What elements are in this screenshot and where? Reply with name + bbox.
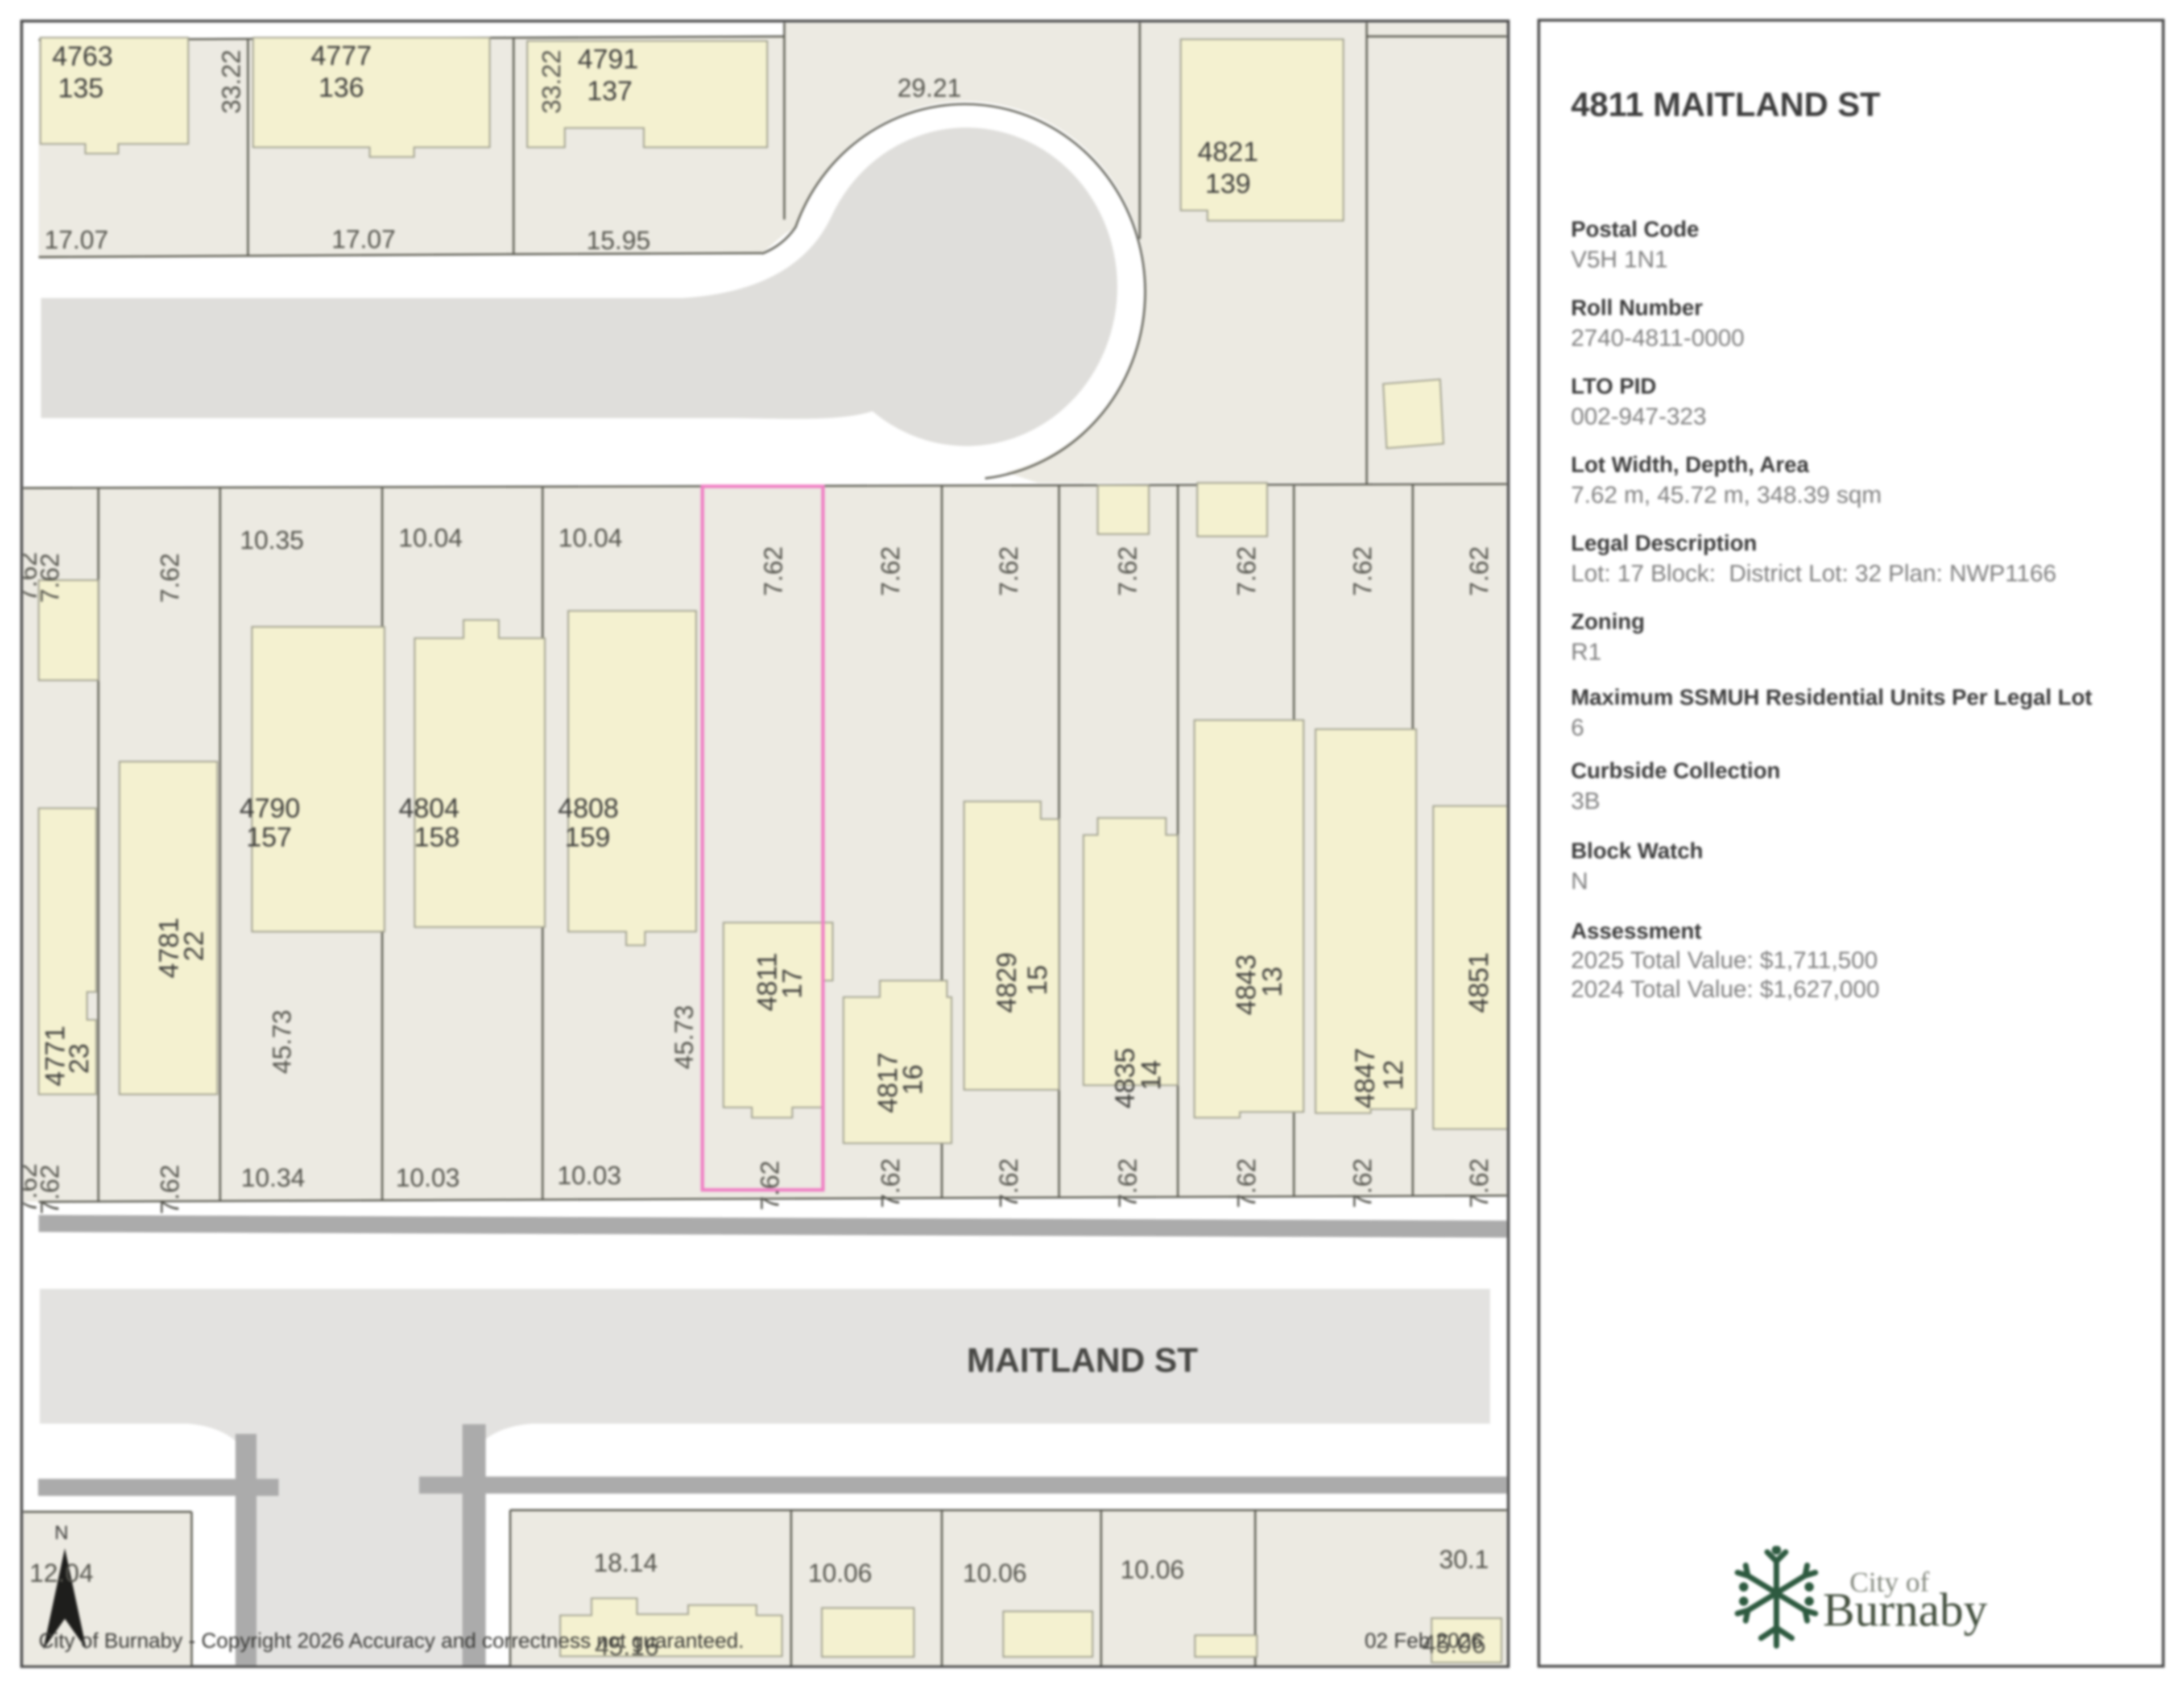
- svg-text:158: 158: [414, 822, 460, 853]
- svg-text:15: 15: [1023, 965, 1053, 995]
- svg-text:10.04: 10.04: [559, 523, 623, 552]
- svg-text:10.34: 10.34: [241, 1163, 305, 1192]
- svg-text:45.73: 45.73: [669, 1005, 698, 1069]
- svg-text:17: 17: [777, 969, 808, 999]
- svg-text:7.62: 7.62: [1113, 1158, 1142, 1208]
- svg-text:18.14: 18.14: [594, 1548, 658, 1577]
- svg-text:4804: 4804: [399, 793, 460, 824]
- svg-text:137: 137: [587, 76, 632, 106]
- svg-text:N: N: [55, 1522, 69, 1544]
- svg-text:City of Burnaby - Copyright 20: City of Burnaby - Copyright 2026 Accurac…: [39, 1629, 744, 1652]
- svg-text:7.62: 7.62: [155, 1164, 184, 1214]
- svg-text:4763: 4763: [52, 42, 113, 72]
- svg-text:136: 136: [318, 73, 364, 103]
- svg-text:10.35: 10.35: [240, 526, 304, 555]
- svg-text:7.62: 7.62: [876, 1158, 905, 1208]
- svg-text:02 Feb 2026: 02 Feb 2026: [1364, 1629, 1483, 1652]
- svg-text:4829: 4829: [992, 952, 1022, 1013]
- svg-text:10.04: 10.04: [399, 523, 463, 552]
- svg-text:157: 157: [246, 822, 292, 853]
- svg-text:4790: 4790: [239, 793, 300, 824]
- svg-text:4808: 4808: [558, 793, 619, 824]
- svg-text:29.21: 29.21: [897, 73, 962, 102]
- svg-text:33.22: 33.22: [217, 49, 246, 114]
- svg-text:7.62: 7.62: [759, 546, 788, 596]
- svg-text:139: 139: [1205, 169, 1251, 199]
- svg-text:7.62: 7.62: [155, 553, 184, 603]
- svg-text:159: 159: [565, 822, 610, 853]
- svg-text:7.62: 7.62: [1232, 1158, 1261, 1208]
- svg-text:12: 12: [1379, 1060, 1409, 1090]
- svg-text:MAITLAND ST: MAITLAND ST: [967, 1341, 1198, 1379]
- svg-text:4791: 4791: [578, 44, 639, 75]
- svg-text:17.07: 17.07: [44, 225, 109, 254]
- svg-text:7.62: 7.62: [13, 1163, 42, 1213]
- svg-text:13: 13: [1258, 967, 1288, 997]
- svg-text:10.03: 10.03: [396, 1163, 460, 1192]
- svg-text:7.62: 7.62: [755, 1160, 784, 1210]
- svg-text:7.62: 7.62: [994, 1158, 1023, 1208]
- svg-text:10.06: 10.06: [808, 1558, 872, 1587]
- svg-text:16: 16: [898, 1065, 928, 1095]
- svg-text:4851: 4851: [1464, 952, 1494, 1013]
- svg-text:7.62: 7.62: [876, 546, 905, 596]
- svg-text:10.06: 10.06: [1120, 1555, 1185, 1584]
- svg-text:7.62: 7.62: [13, 552, 42, 602]
- svg-text:7.62: 7.62: [1465, 546, 1494, 596]
- svg-text:17.07: 17.07: [332, 225, 396, 254]
- svg-text:33.22: 33.22: [537, 49, 566, 114]
- svg-text:4777: 4777: [311, 41, 372, 71]
- svg-text:7.62: 7.62: [1113, 546, 1142, 596]
- svg-text:23: 23: [64, 1044, 94, 1074]
- svg-text:135: 135: [58, 73, 104, 104]
- svg-text:12.04: 12.04: [30, 1558, 94, 1587]
- svg-text:10.03: 10.03: [557, 1161, 622, 1190]
- svg-text:22: 22: [179, 931, 209, 961]
- svg-text:10.06: 10.06: [963, 1558, 1027, 1587]
- svg-text:4847: 4847: [1350, 1048, 1380, 1109]
- svg-text:7.62: 7.62: [1465, 1158, 1494, 1208]
- svg-text:7.62: 7.62: [994, 546, 1023, 596]
- svg-text:7.62: 7.62: [1348, 1158, 1377, 1208]
- svg-text:4821: 4821: [1198, 137, 1259, 167]
- svg-text:30.1: 30.1: [1439, 1545, 1489, 1574]
- svg-text:15.95: 15.95: [586, 226, 651, 255]
- svg-text:7.62: 7.62: [1348, 546, 1377, 596]
- svg-text:45.73: 45.73: [267, 1010, 296, 1074]
- svg-text:14: 14: [1136, 1060, 1167, 1090]
- svg-text:7.62: 7.62: [1232, 546, 1261, 596]
